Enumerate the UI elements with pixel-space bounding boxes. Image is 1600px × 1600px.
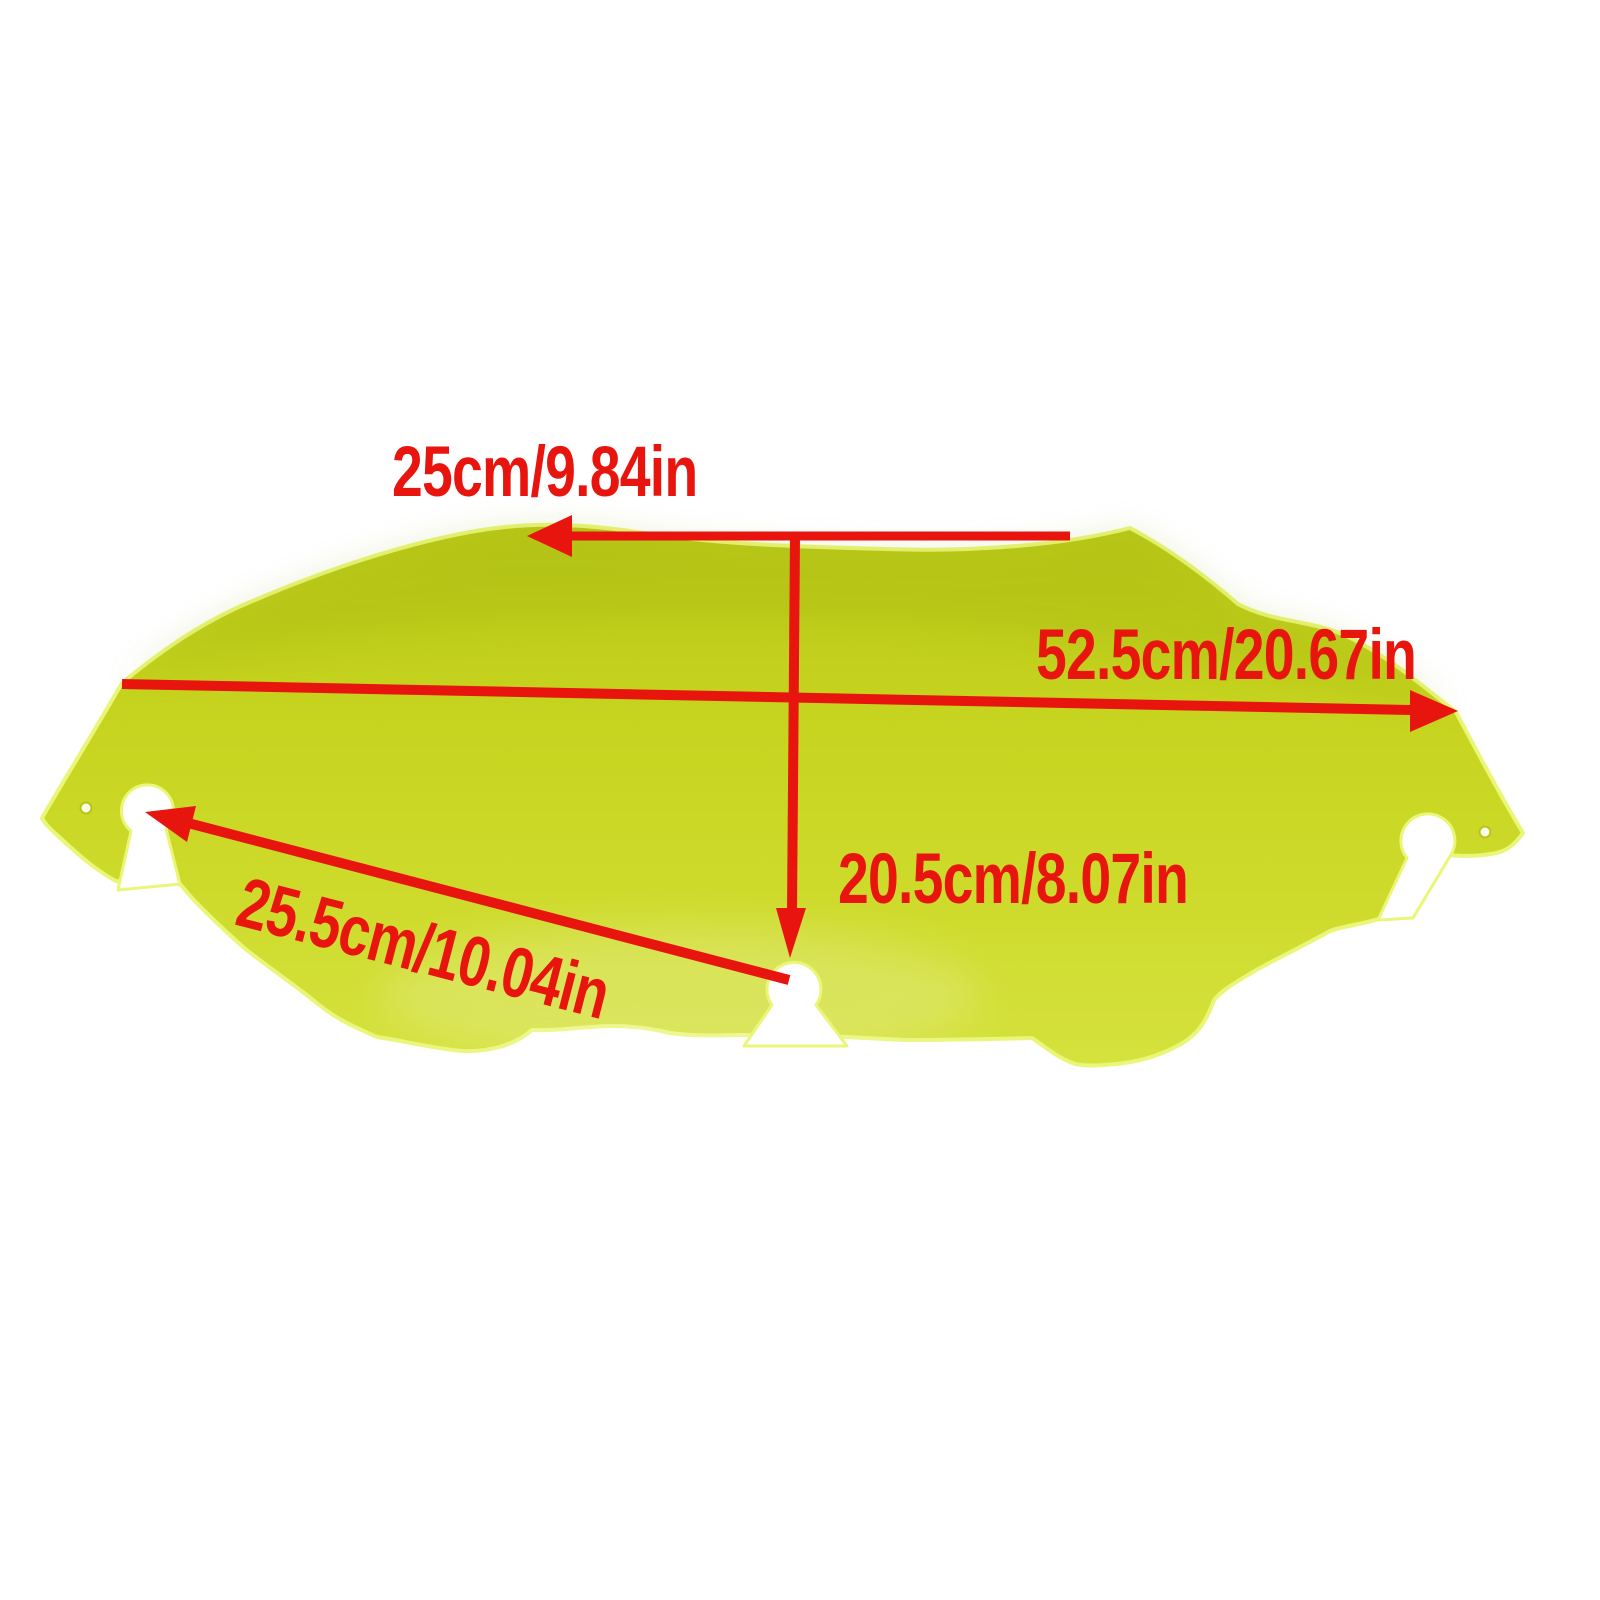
left-screw-hole xyxy=(81,803,92,814)
windshield-diagram-svg xyxy=(0,0,1600,1600)
product-dimension-image: 25cm/9.84in 52.5cm/20.67in 20.5cm/8.07in… xyxy=(0,0,1600,1600)
right-screw-hole xyxy=(1480,827,1491,838)
overall-width-label: 52.5cm/20.67in xyxy=(1036,620,1416,691)
center-height-label: 20.5cm/8.07in xyxy=(838,844,1188,915)
center-height-arrow-line xyxy=(792,536,795,912)
upper-width-label: 25cm/9.84in xyxy=(392,437,697,508)
